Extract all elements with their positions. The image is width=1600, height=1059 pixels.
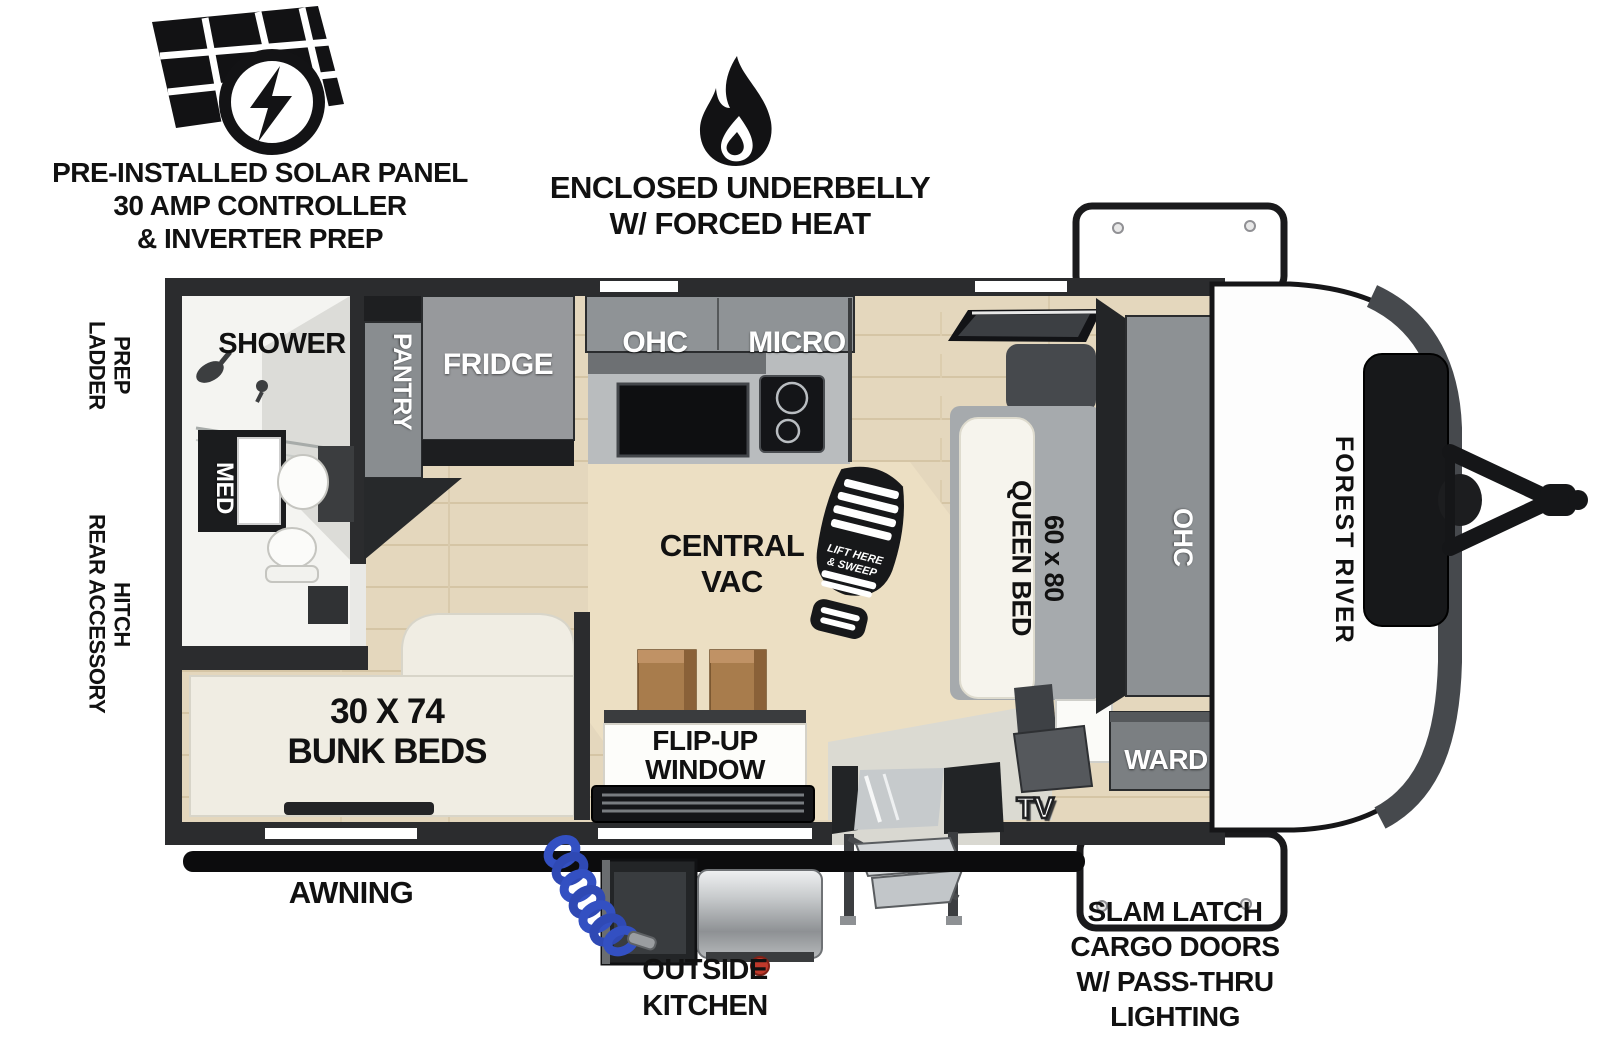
forced-heat-icon — [700, 56, 772, 166]
underbelly-callout: ENCLOSED UNDERBELLY W/ FORCED HEAT — [495, 170, 985, 241]
entry-door — [832, 762, 1004, 845]
bedroom-ohc-cabinet — [1096, 298, 1216, 714]
tv-cabinet — [1014, 726, 1092, 792]
solar-panel-icon — [152, 6, 344, 149]
entry-steps — [840, 832, 962, 925]
solar-callout: PRE-INSTALLED SOLAR PANEL 30 AMP CONTROL… — [30, 156, 490, 255]
stool-left — [638, 650, 696, 718]
window-top-kitchen — [600, 281, 678, 292]
ward-label: WARD — [1110, 744, 1222, 775]
window-bottom-bunk — [265, 828, 417, 839]
micro-label: MICRO — [727, 326, 867, 360]
propane-tongue-cover — [1364, 354, 1448, 626]
fridge-label: FRIDGE — [424, 348, 572, 382]
bunk-beds-label: 30 X 74 BUNK BEDS — [262, 692, 512, 773]
kitchen-sink — [618, 384, 748, 456]
awning-callout: AWNING — [246, 876, 456, 911]
rear-accessory-hitch-callout: REAR ACCESSORY HITCH — [84, 466, 150, 762]
pantry-label: PANTRY — [372, 306, 416, 456]
ohc-bedroom-label: OHC — [1158, 462, 1198, 612]
central-vac-label: CENTRAL VAC — [622, 528, 842, 599]
queen-bed-label: 60 x 80 QUEEN BED — [994, 442, 1070, 674]
cooktop — [760, 376, 824, 452]
slam-latch-callout: SLAM LATCH CARGO DOORS W/ PASS-THRU LIGH… — [1010, 894, 1340, 1034]
ladder-prep-callout: LADDER PREP — [84, 290, 150, 440]
stool-right — [710, 650, 766, 718]
med-label: MED — [203, 442, 237, 534]
headboard — [1006, 344, 1096, 412]
shower-label: SHOWER — [202, 328, 362, 360]
floorplan-page: LIFT HERE & SWEEP — [0, 0, 1600, 1059]
flip-up-window-label: FLIP-UP WINDOW — [608, 726, 802, 785]
window-bottom-dinette — [598, 828, 812, 839]
ohc-kitchen-label: OHC — [600, 326, 710, 360]
outside-kitchen-callout: OUTSIDE KITCHEN — [580, 952, 830, 1025]
tv-label: TV — [1000, 792, 1070, 826]
window-top-bed — [975, 281, 1067, 292]
forest-river-brand: FOREST RIVER — [1314, 372, 1358, 708]
